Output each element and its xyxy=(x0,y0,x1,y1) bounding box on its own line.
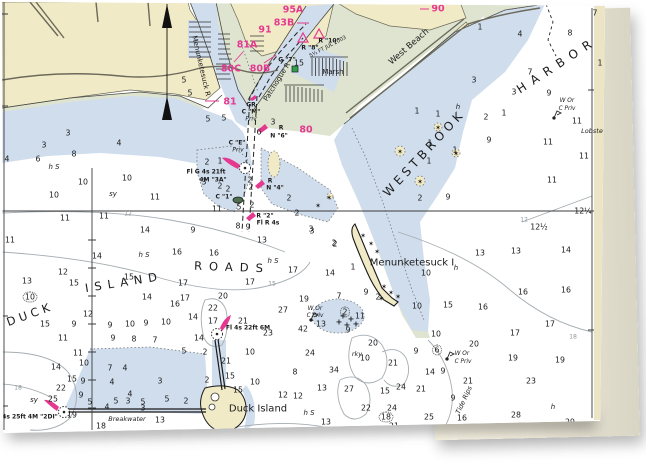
sounding: 9 xyxy=(191,226,196,235)
greeting-card-scene: WESTBROOKHARBORDUCKISLANDROADSMenunketes… xyxy=(0,0,646,470)
sounding: 10 xyxy=(79,359,89,368)
rock-asterisk-icon: ✶ xyxy=(453,150,459,158)
sounding: 1 xyxy=(427,157,432,166)
sounding: 18 xyxy=(96,422,106,431)
sounding: 15 xyxy=(233,386,243,395)
sounding: 12¼ xyxy=(574,207,591,216)
light-note: 4s 25ft 4M "2DI" xyxy=(2,414,58,421)
sounding: 9 xyxy=(446,193,451,202)
contour-label: 12 xyxy=(124,211,132,218)
contour-label: 15 xyxy=(268,281,276,288)
sounding: 10 xyxy=(125,320,135,329)
sounding: 9 xyxy=(414,347,419,356)
sounding: 8 xyxy=(568,29,573,38)
sounding: 17 xyxy=(288,266,298,275)
rock-asterisk-icon: ✶ xyxy=(395,293,401,301)
sounding: 25 xyxy=(424,413,434,422)
sounding: 15 xyxy=(443,301,453,310)
rock-asterisk-icon: ✶ xyxy=(397,148,403,156)
sounding: 9 xyxy=(111,334,116,343)
sounding: 5 xyxy=(206,115,211,124)
sounding: 11 xyxy=(60,214,70,223)
sounding: 21 xyxy=(221,357,231,366)
sounding: 16 xyxy=(209,249,219,258)
rock-asterisk-icon: ✶ xyxy=(378,295,384,303)
sounding: 23 xyxy=(526,377,536,386)
sounding: 14 xyxy=(142,293,152,302)
sounding: 16 xyxy=(478,303,488,312)
circled-sounding: 10 xyxy=(23,292,38,303)
label-bottom-sy: sy xyxy=(30,396,38,404)
sounding: 27 xyxy=(344,385,354,394)
sounding: 1 xyxy=(598,59,603,68)
sounding: 2 xyxy=(184,397,189,406)
label-bottom-hs: h S xyxy=(303,409,314,417)
sounding: 2 xyxy=(250,201,255,210)
label-harbor: HARBOR xyxy=(514,34,600,97)
sounding: 12 xyxy=(58,268,68,277)
sounding: 5 xyxy=(141,398,146,407)
sounding: 16 xyxy=(172,248,182,257)
sounding: 9 xyxy=(246,223,251,232)
contour-label: 18 xyxy=(569,334,577,341)
sounding: 12 xyxy=(278,391,288,400)
sounding: 9 xyxy=(108,321,113,330)
sounding: 22 xyxy=(56,384,66,393)
sounding: 17 xyxy=(545,320,555,329)
sounding: 5 xyxy=(165,395,170,404)
sounding: 5 xyxy=(188,89,193,98)
rock-asterisk-icon: ✶ xyxy=(368,240,374,248)
sounding: 9 xyxy=(547,89,552,98)
sounding: 10 xyxy=(78,178,88,187)
sounding: 10 xyxy=(161,318,171,327)
buoy-note: N "4" xyxy=(266,185,284,192)
sounding: 15 xyxy=(225,372,235,381)
sounding: 14 xyxy=(194,334,204,343)
sounding: 14 xyxy=(425,368,435,377)
sounding: 12 xyxy=(83,310,93,319)
rock-asterisk-icon: ✶ xyxy=(360,232,366,240)
sounding: 13 xyxy=(316,320,326,329)
sounding: 13 xyxy=(321,418,331,427)
sounding: 7 xyxy=(153,336,158,345)
sounding: 11 xyxy=(99,212,109,221)
sounding: 4 xyxy=(518,30,523,39)
sounding: 7 xyxy=(593,9,598,18)
sounding: 9 xyxy=(487,136,492,145)
rock-awash-cross-icon: + xyxy=(353,320,360,329)
sounding: 3 xyxy=(512,88,517,97)
sounding: 21 xyxy=(416,385,426,394)
buoy-note: R xyxy=(279,125,284,132)
label-bottom-sy: sy xyxy=(109,190,117,198)
sounding: 24 xyxy=(305,349,315,358)
sounding: 14 xyxy=(561,246,571,255)
sounding: 15 xyxy=(40,320,50,329)
sounding: 13 xyxy=(511,247,521,256)
sounding: 10 xyxy=(431,330,441,339)
sounding: 2 xyxy=(205,376,210,385)
route-label-81: 81 xyxy=(223,97,236,108)
sounding: 4 xyxy=(110,378,115,387)
sounding: 12½ xyxy=(530,223,547,232)
sounding: 4 xyxy=(117,139,122,148)
sounding: 5 xyxy=(182,347,187,356)
rock-asterisk-icon: ✶ xyxy=(315,202,321,210)
label-bottom-hs: h S xyxy=(138,251,149,259)
sounding: 20 xyxy=(218,292,228,301)
sounding: 5 xyxy=(237,203,242,212)
sounding: 17 xyxy=(178,279,188,288)
sounding: 14 xyxy=(51,363,61,372)
sounding: 8 xyxy=(72,150,77,159)
sounding: 2 xyxy=(287,194,292,203)
sounding: 6 xyxy=(257,128,262,137)
sounding: 5 xyxy=(182,76,187,85)
rock-asterisk-icon: ✶ xyxy=(417,178,423,186)
route-label-90: 90 xyxy=(431,4,444,15)
sounding: 17 xyxy=(245,278,255,287)
sounding: 10 xyxy=(421,269,431,278)
contour-label: 12 xyxy=(520,217,528,224)
sounding: 3 xyxy=(202,178,207,187)
sounding: 10 xyxy=(49,191,59,200)
sounding: 24 xyxy=(396,383,406,392)
buoy-note: C Priv xyxy=(559,106,576,112)
label-bottom-h: h xyxy=(456,103,460,111)
sounding: 17 xyxy=(510,329,520,338)
label-roads: ROADS xyxy=(194,259,270,276)
sounding: 10 xyxy=(250,378,260,387)
contour-label: 18 xyxy=(14,385,22,392)
rock-awash-cross-icon: + xyxy=(336,318,343,327)
sounding: 1 xyxy=(428,139,433,148)
sounding: 25 xyxy=(48,395,58,404)
route-label-80b: 80B xyxy=(250,64,270,75)
sounding: 2 xyxy=(249,183,254,192)
label-bottom-hs: h S xyxy=(48,163,59,171)
sounding: 11 xyxy=(212,205,222,214)
sounding: 10 xyxy=(245,348,255,357)
sounding: 3 xyxy=(158,377,163,386)
label-tide-rips: Tide Rips xyxy=(454,385,474,415)
label-lobster: Lobste xyxy=(581,127,603,135)
sounding: 10 xyxy=(412,302,422,311)
circled-sounding: 6 xyxy=(432,345,442,356)
sounding: 4 xyxy=(5,155,10,164)
sounding: 2 xyxy=(333,240,338,249)
route-label-81a: 81A xyxy=(237,40,258,51)
sounding: 5 xyxy=(222,114,227,123)
sounding: 9 xyxy=(451,394,456,403)
sounding: 16 xyxy=(561,286,571,295)
buoy-note: W Or xyxy=(308,306,323,312)
sounding: 13 xyxy=(257,236,267,245)
sounding: 11 xyxy=(547,176,557,185)
route-label-80: 80 xyxy=(299,125,312,136)
sounding: 11 xyxy=(150,193,160,202)
label-bottom-hs: h S xyxy=(267,257,278,265)
sounding: 5 xyxy=(88,398,93,407)
sounding: 19 xyxy=(555,356,565,365)
sounding: 11 xyxy=(572,117,582,126)
nautical-chart-card: WESTBROOKHARBORDUCKISLANDROADSMenunketes… xyxy=(2,2,605,433)
sounding: 9 xyxy=(144,319,149,328)
buoy-note: N "6" xyxy=(270,133,288,140)
sounding: 16 xyxy=(170,300,180,309)
sounding: 9 xyxy=(441,367,446,376)
sounding: 5 xyxy=(114,397,119,406)
sounding: 3 xyxy=(42,141,47,150)
sounding: 2 xyxy=(418,194,423,203)
sounding: 34 xyxy=(329,366,339,375)
sounding: 15 xyxy=(69,279,79,288)
rock-asterisk-icon: ✶ xyxy=(435,124,441,132)
buoy-note: W Or xyxy=(560,98,575,104)
sounding: 3 xyxy=(472,76,477,85)
sounding: 10 xyxy=(122,174,132,183)
label-bottom-h: h xyxy=(454,264,458,272)
light-note: Fl G 4s 21ft xyxy=(187,169,226,176)
label-bottom-h: h xyxy=(551,403,555,411)
light-note: Fl R 4s xyxy=(257,220,280,227)
sounding: 1 xyxy=(415,107,420,116)
sounding: 8 xyxy=(132,335,137,344)
sounding: 2 xyxy=(295,209,300,218)
sounding: 14 xyxy=(325,269,335,278)
label-breakwater: Breakwater xyxy=(108,415,145,423)
sounding: 42 xyxy=(298,325,308,334)
sounding: 15 xyxy=(294,59,304,68)
sounding: 4 xyxy=(105,403,110,412)
buoy-note: R xyxy=(268,178,273,185)
sounding: 11 xyxy=(58,334,68,343)
sounding: 20 xyxy=(368,339,378,348)
sounding: 22 xyxy=(208,304,218,313)
sounding: 15 xyxy=(124,273,134,282)
sounding: 11 xyxy=(73,349,83,358)
sounding: 22 xyxy=(361,404,371,413)
sounding: 13 xyxy=(22,277,32,286)
sounding: 1 xyxy=(478,23,483,32)
buoy-note: Priv xyxy=(232,147,243,154)
rock-asterisk-icon: ✶ xyxy=(326,194,332,202)
buoy-note: W Or xyxy=(455,351,470,357)
sounding: 1 xyxy=(436,110,441,119)
circled-sounding: 18 xyxy=(379,412,394,423)
sounding: 14 xyxy=(188,313,198,322)
chart-text-layer: WESTBROOKHARBORDUCKISLANDROADSMenunketes… xyxy=(2,2,605,433)
sounding: 7 xyxy=(108,364,113,373)
buoy-note: C "E" xyxy=(229,140,246,147)
sounding: 21 xyxy=(238,317,248,326)
label-west-beach: West Beach xyxy=(387,27,431,67)
route-label-91: 91 xyxy=(258,25,271,36)
sounding: 3 xyxy=(310,227,315,236)
sounding: 8 xyxy=(293,368,298,377)
sounding: 3 xyxy=(271,118,276,127)
sounding: 17 xyxy=(180,294,190,303)
sounding: 9 xyxy=(81,377,86,386)
sounding: 11 xyxy=(579,152,589,161)
buoy-note: R "2" xyxy=(256,213,273,220)
sounding: 14 xyxy=(92,252,102,261)
buoy-note: Priv xyxy=(245,116,256,123)
sounding: 2 xyxy=(484,113,489,122)
label-duck-island: Duck Island xyxy=(229,404,287,415)
sounding: 28 xyxy=(511,411,521,420)
buoy-note: C "M" xyxy=(242,109,261,116)
sounding: 14 xyxy=(140,226,150,235)
sounding: 1 xyxy=(351,263,356,272)
sounding: 9 xyxy=(72,320,77,329)
sounding: 16 xyxy=(518,288,528,297)
buoy-note: GR xyxy=(246,102,256,109)
sounding: 11 xyxy=(543,138,553,147)
route-label-95a: 95A xyxy=(283,5,304,16)
sounding: 15 xyxy=(67,375,77,384)
sounding: 12 xyxy=(293,392,303,401)
sounding: 1 xyxy=(218,157,223,166)
rock-awash-cross-icon: + xyxy=(344,321,351,330)
sounding: 17 xyxy=(208,317,218,326)
sounding: 19 xyxy=(508,354,518,363)
label-menunketesuck-island: Menunketesuck I xyxy=(370,258,454,269)
sounding: 9 xyxy=(79,391,84,400)
sounding: 4 xyxy=(123,364,128,373)
sounding: 2 xyxy=(205,158,210,167)
buoy-note: C "1" xyxy=(216,194,233,201)
sounding: 2 xyxy=(218,182,223,191)
sounding: 15 xyxy=(380,387,390,396)
sounding: 2 xyxy=(226,185,231,194)
sounding: 9 xyxy=(364,288,369,297)
sounding: 7 xyxy=(337,292,342,301)
rock-asterisk-icon: ✶ xyxy=(374,248,380,256)
sounding: 1 xyxy=(502,109,507,118)
sounding: 16 xyxy=(457,414,467,423)
rock-asterisk-icon: ✶ xyxy=(388,289,394,297)
label-menunketesuck-river: Menunketesuck R xyxy=(190,35,212,97)
sounding: 13 xyxy=(155,416,165,425)
buoy-note: C Priv xyxy=(307,313,324,319)
sounding: 21 xyxy=(463,377,473,386)
sounding: 3 xyxy=(66,129,71,138)
sounding: 23 xyxy=(263,329,273,338)
sounding: 10 xyxy=(360,354,370,363)
sounding: 19 xyxy=(299,295,309,304)
buoy-note: C Priv xyxy=(455,359,472,365)
sounding: 20 xyxy=(469,340,479,349)
sounding: 27 xyxy=(278,306,288,315)
sounding: 19 xyxy=(67,411,77,420)
sounding: 13 xyxy=(317,384,327,393)
sounding: 2 xyxy=(203,348,208,357)
sounding: 3 xyxy=(126,397,131,406)
sounding: 11 xyxy=(5,236,15,245)
sounding: 13 xyxy=(475,249,485,258)
sounding: 6 xyxy=(36,155,41,164)
sounding: 7 xyxy=(528,68,533,77)
rock-asterisk-icon: ✶ xyxy=(381,283,387,291)
sounding: 8 xyxy=(236,222,241,231)
label-marsh: Marsh xyxy=(322,68,343,76)
route-label-83b: 83B xyxy=(274,18,294,29)
sounding: 21 xyxy=(388,359,398,368)
route-label-80c: 80C xyxy=(221,64,241,75)
